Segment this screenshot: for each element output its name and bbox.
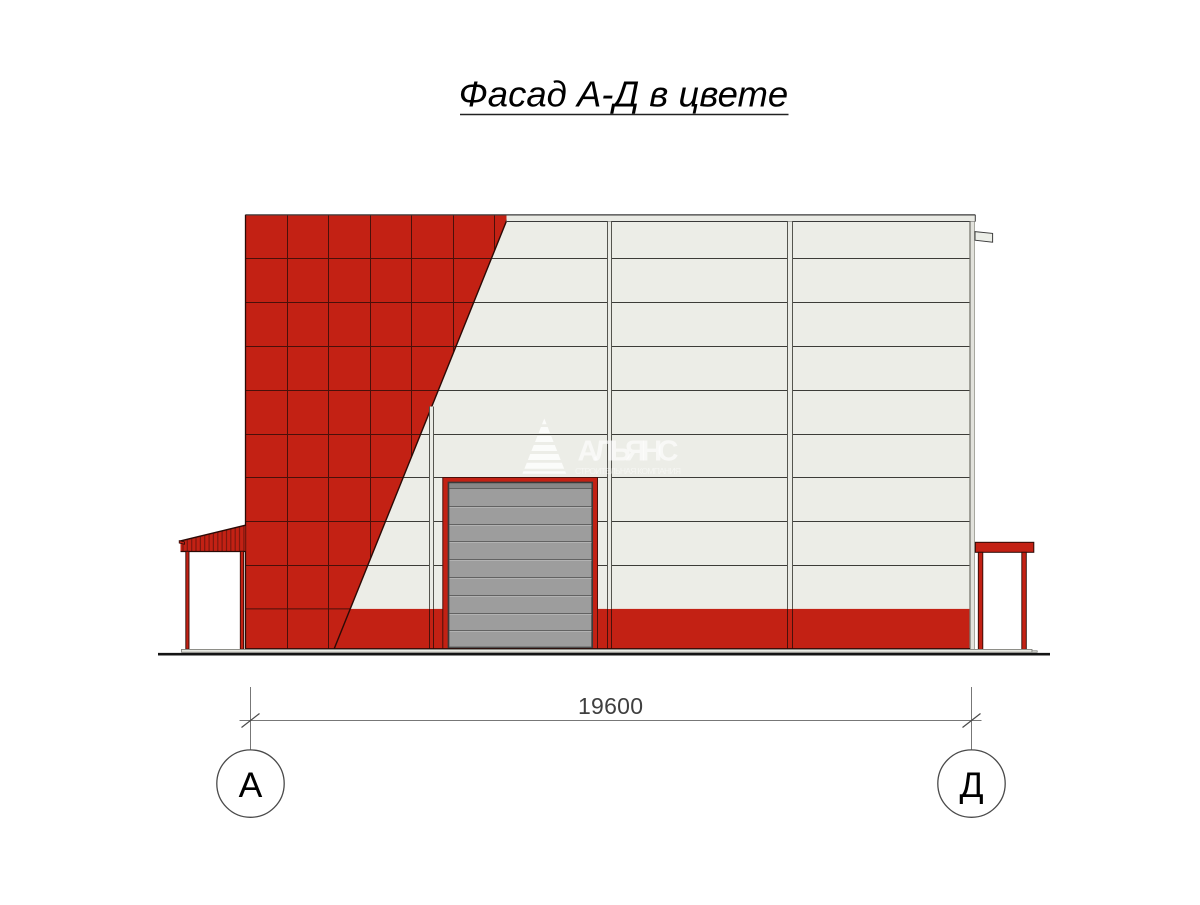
svg-text:СТРОИТЕЛЬНАЯ КОМПАНИЯ: СТРОИТЕЛЬНАЯ КОМПАНИЯ [575, 466, 681, 476]
svg-text:А: А [239, 765, 263, 805]
svg-text:Фасад А-Д в цвете: Фасад А-Д в цвете [459, 74, 788, 115]
svg-text:АЛЬЯНС: АЛЬЯНС [578, 436, 679, 468]
svg-text:19600: 19600 [578, 693, 643, 719]
svg-text:Д: Д [959, 765, 983, 805]
